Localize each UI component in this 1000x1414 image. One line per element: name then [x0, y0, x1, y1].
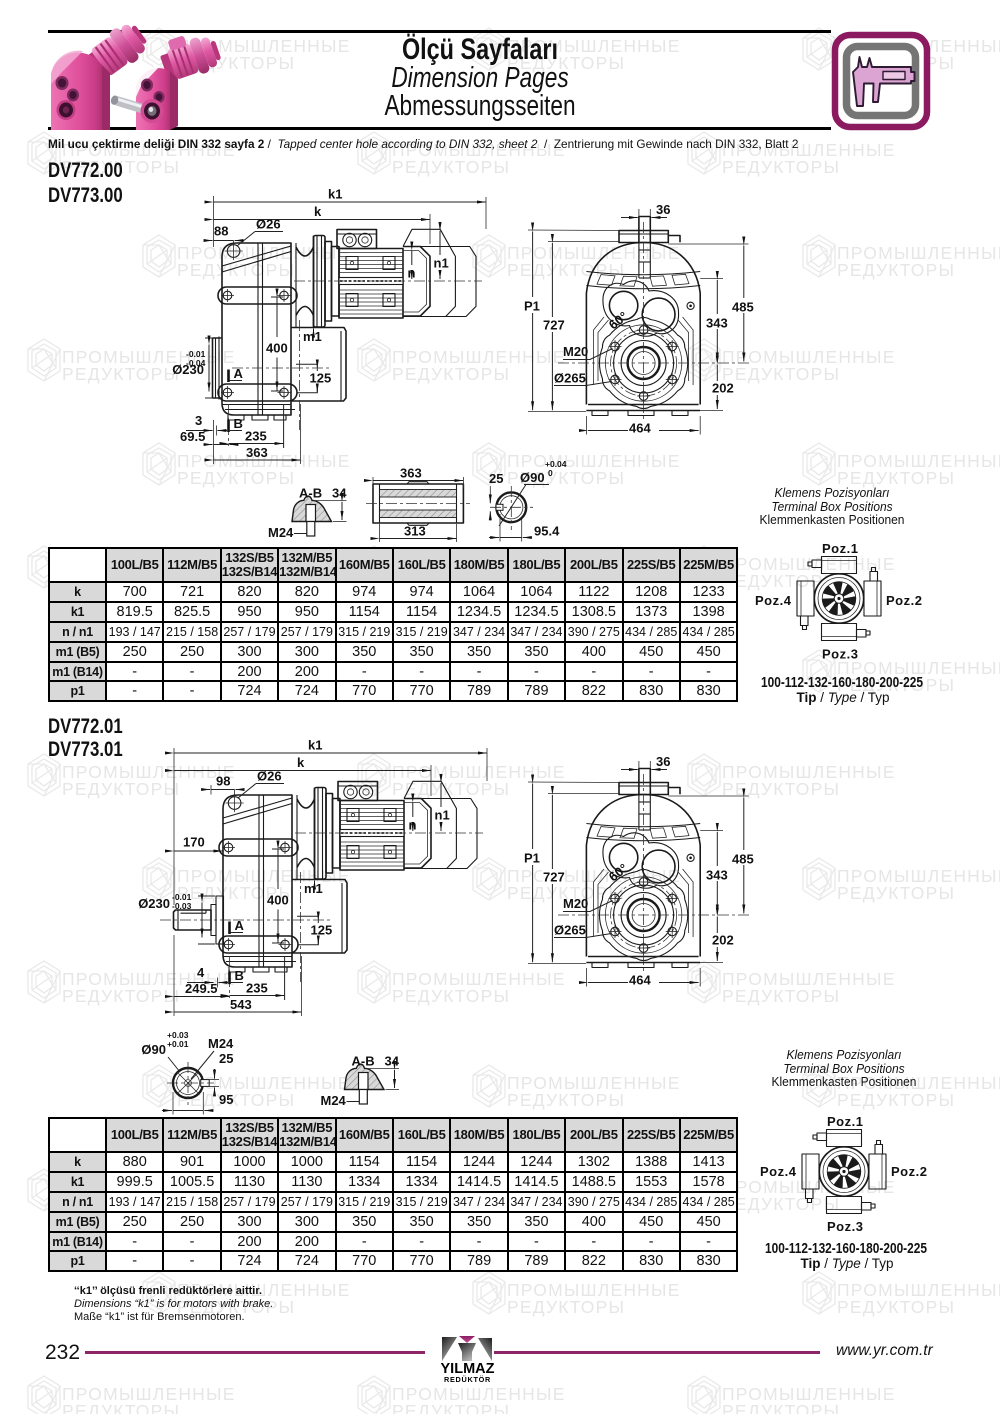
svg-text:363: 363: [400, 466, 422, 481]
svg-text:202: 202: [712, 381, 734, 396]
svg-text:A-B: A-B: [299, 486, 322, 501]
svg-text:235: 235: [246, 981, 268, 996]
svg-text:Poz.1: Poz.1: [822, 541, 858, 556]
svg-text:0: 0: [548, 468, 553, 478]
svg-text:A: A: [235, 918, 245, 933]
svg-text:M20: M20: [563, 344, 588, 359]
svg-text:B: B: [235, 968, 244, 983]
svg-text:3: 3: [195, 413, 202, 428]
svg-text:B: B: [234, 416, 243, 431]
svg-text:125: 125: [311, 923, 333, 938]
svg-text:170: 170: [183, 835, 205, 850]
svg-text:249.5: 249.5: [185, 981, 218, 996]
svg-text:n1: n1: [434, 256, 449, 271]
svg-text:Ø90: Ø90: [520, 470, 545, 485]
svg-text:m1: m1: [304, 881, 323, 896]
svg-text:Poz.2: Poz.2: [891, 1164, 927, 1179]
svg-text:k1: k1: [308, 738, 322, 753]
svg-text:M24: M24: [268, 525, 294, 540]
svg-text:313: 313: [404, 524, 426, 539]
svg-text:400: 400: [267, 893, 289, 908]
svg-text:Poz.3: Poz.3: [827, 1219, 863, 1234]
svg-text:Poz.1: Poz.1: [827, 1114, 863, 1129]
svg-text:4: 4: [197, 965, 205, 980]
svg-text:A: A: [234, 366, 244, 381]
svg-text:n: n: [408, 266, 416, 281]
svg-text:m1: m1: [303, 329, 322, 344]
svg-text:Ø26: Ø26: [256, 217, 281, 232]
svg-text:400: 400: [266, 341, 288, 356]
svg-text:363: 363: [246, 445, 268, 460]
svg-text:Poz.4: Poz.4: [755, 593, 792, 608]
svg-text:Ø265: Ø265: [554, 371, 586, 386]
svg-text:Ø90: Ø90: [141, 1042, 166, 1057]
svg-text:M24: M24: [208, 1036, 234, 1051]
svg-text:95.4: 95.4: [534, 524, 560, 539]
svg-text:k: k: [297, 755, 305, 770]
svg-text:-0.03: -0.03: [172, 901, 192, 911]
svg-text:Poz.4: Poz.4: [760, 1164, 797, 1179]
svg-text:36: 36: [656, 202, 670, 217]
svg-text:343: 343: [706, 316, 728, 331]
svg-text:Poz.2: Poz.2: [886, 593, 922, 608]
svg-text:+0.01: +0.01: [167, 1039, 189, 1049]
svg-text:69.5: 69.5: [180, 429, 205, 444]
svg-text:235: 235: [245, 429, 267, 444]
svg-text:727: 727: [543, 318, 565, 333]
svg-text:543: 543: [230, 997, 252, 1012]
svg-text:Ø230: Ø230: [138, 896, 170, 911]
svg-text:P1: P1: [524, 299, 540, 314]
svg-text:464: 464: [629, 421, 651, 436]
svg-text:95: 95: [219, 1092, 233, 1107]
svg-text:25: 25: [219, 1051, 233, 1066]
svg-text:34: 34: [332, 486, 347, 501]
svg-text:88: 88: [214, 224, 228, 239]
svg-text:98: 98: [216, 774, 230, 789]
svg-text:-0.04: -0.04: [186, 358, 206, 368]
svg-text:n1: n1: [435, 808, 450, 823]
svg-text:k1: k1: [328, 187, 342, 202]
svg-text:125: 125: [310, 371, 332, 386]
svg-text:Poz.3: Poz.3: [822, 647, 858, 662]
svg-text:k: k: [314, 204, 322, 219]
svg-text:485: 485: [732, 300, 754, 315]
svg-text:25: 25: [489, 471, 503, 486]
svg-text:n: n: [409, 818, 417, 833]
